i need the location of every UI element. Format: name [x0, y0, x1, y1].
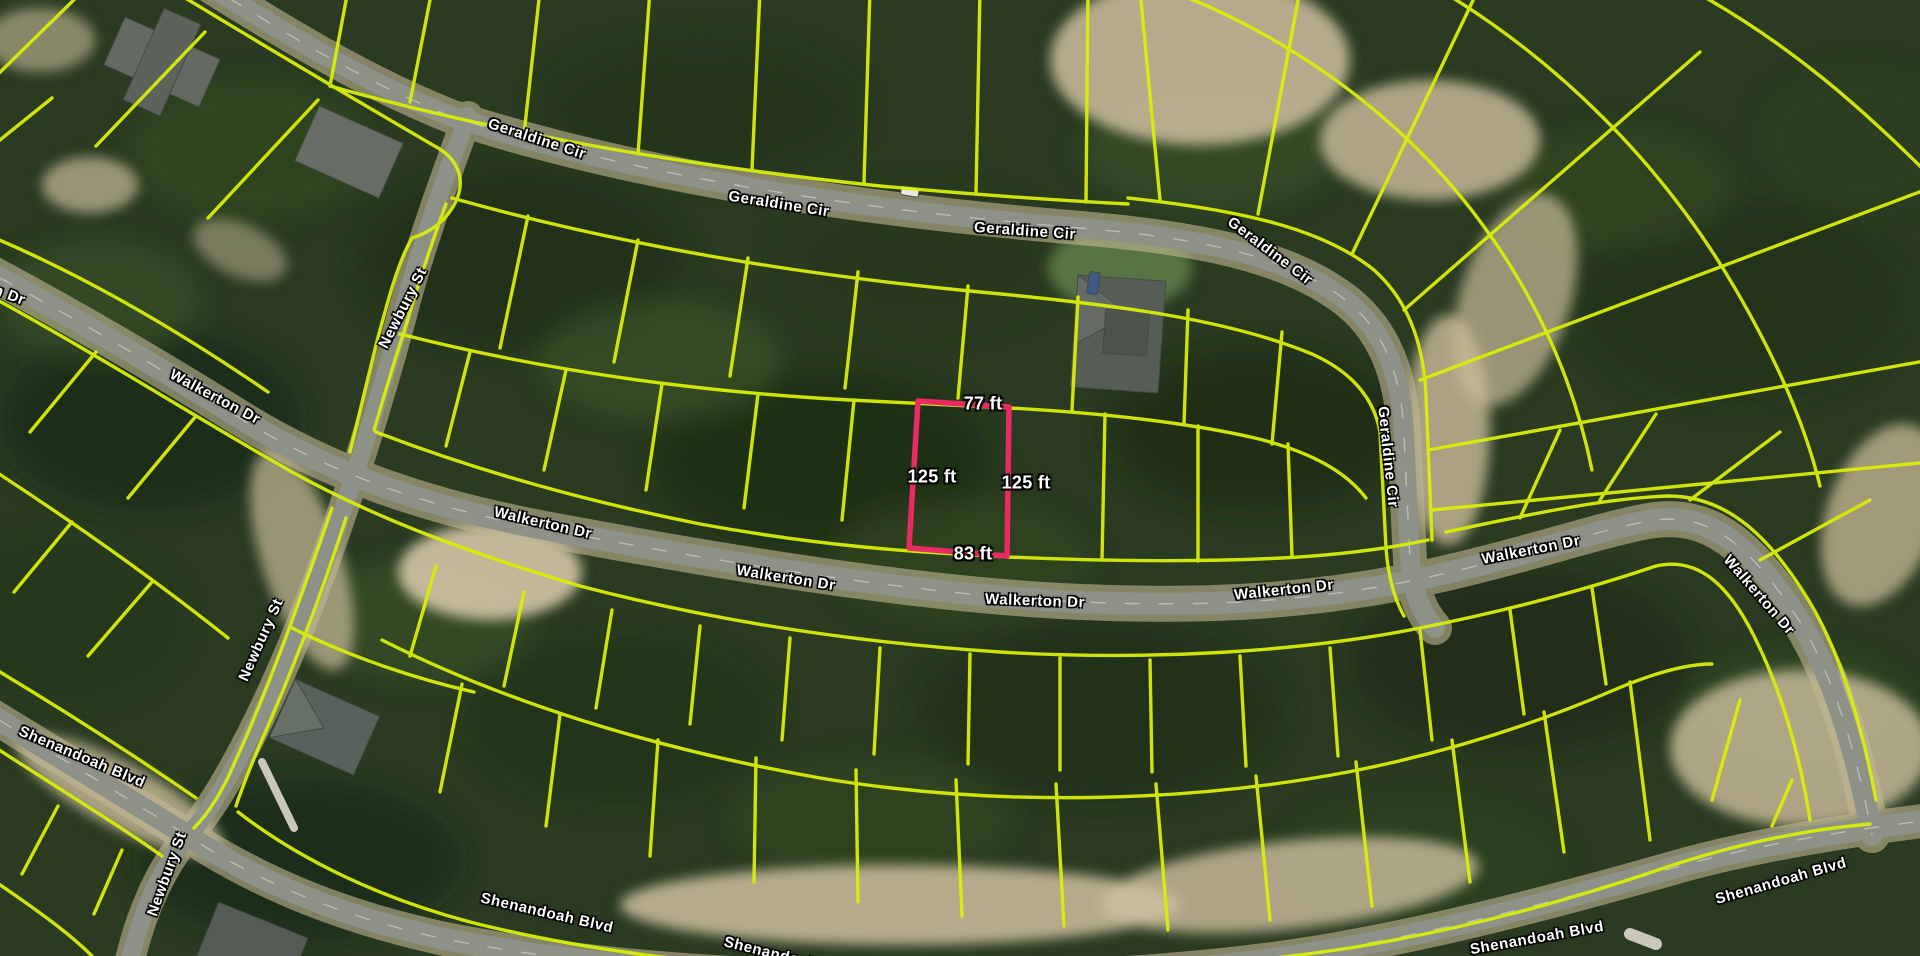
map-layers: [0, 0, 1920, 956]
map-canvas[interactable]: Geraldine Cir Geraldine Cir Geraldine Ci…: [0, 0, 1920, 956]
car: [1087, 271, 1101, 294]
house-roof: [1070, 275, 1166, 393]
